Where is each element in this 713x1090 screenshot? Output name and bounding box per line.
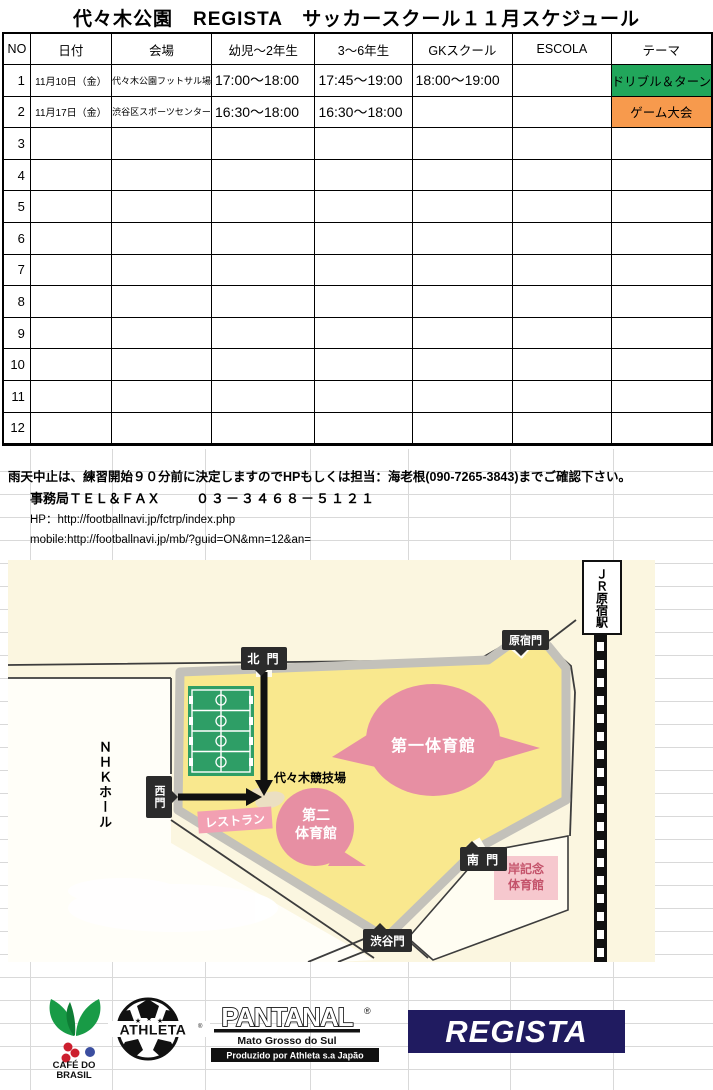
cell-venue [111, 222, 211, 254]
cell-escola [513, 96, 611, 128]
harajuku-gate-label: 原宿門 [502, 630, 549, 650]
cell-gk [412, 191, 513, 223]
yoyogi-stadium-label: 代々木競技場 [274, 769, 346, 786]
table-row: 7 [3, 254, 712, 286]
cell-date [30, 159, 111, 191]
underline [214, 1029, 360, 1033]
cell-gk [412, 317, 513, 349]
cell-theme [611, 159, 712, 191]
cafe-text-line2: BRASIL [56, 1070, 92, 1080]
office-tel-label: 事務局ＴＥＬ＆ＦＡＸ [30, 488, 160, 507]
cell-infant [211, 191, 314, 223]
cell-infant: 16:30～18:00 [211, 96, 314, 128]
cell-escola [513, 380, 611, 412]
pointer-icon [466, 841, 478, 847]
cell-date [30, 128, 111, 160]
cell-infant [211, 412, 314, 445]
cell-no: 5 [3, 191, 30, 223]
cell-upper [315, 317, 412, 349]
regista-text: REGISTA [445, 1014, 588, 1050]
cell-theme [611, 349, 712, 381]
cell-venue [111, 128, 211, 160]
cell-no: 2 [3, 96, 30, 128]
cell-escola [513, 412, 611, 445]
table-row: 8 [3, 286, 712, 318]
cell-gk [412, 159, 513, 191]
cell-infant [211, 254, 314, 286]
cell-no: 9 [3, 317, 30, 349]
table-row: 11 [3, 380, 712, 412]
col-header-venue: 会場 [111, 33, 211, 65]
table-row: 3 [3, 128, 712, 160]
north-gate-label: 北 門 [241, 647, 287, 670]
cell-date [30, 412, 111, 445]
col-header-upper: 3～6年生 [315, 33, 412, 65]
cell-no: 8 [3, 286, 30, 318]
cell-theme [611, 191, 712, 223]
cell-no: 3 [3, 128, 30, 160]
cell-upper: 16:30～18:00 [315, 96, 412, 128]
pointer-icon [172, 791, 178, 803]
cell-theme [611, 254, 712, 286]
cell-no: 11 [3, 380, 30, 412]
cell-escola [513, 254, 611, 286]
pantanal-logo: PANTANAL ® Mato Grosso do Sul Produzido … [211, 1002, 387, 1069]
cell-theme [611, 222, 712, 254]
table-row: 111月10日（金）代々木公園フットサル場17:00～18:0017:45～19… [3, 65, 712, 97]
cell-theme [611, 380, 712, 412]
cell-infant [211, 317, 314, 349]
cell-upper [315, 159, 412, 191]
cell-escola [513, 191, 611, 223]
cell-theme: ドリブル＆ターン [611, 65, 712, 97]
cell-escola [513, 222, 611, 254]
cell-theme [611, 128, 712, 160]
page: 代々木公園 REGISTA サッカースクール１１月スケジュール NO 日付 会場… [0, 0, 713, 1090]
cell-no: 10 [3, 349, 30, 381]
page-title: 代々木公園 REGISTA サッカースクール１１月スケジュール [0, 4, 713, 31]
col-header-escola: ESCOLA [513, 33, 611, 65]
cell-escola [513, 349, 611, 381]
cell-upper [315, 412, 412, 445]
athleta-logo: ★★★ ATHLETA ® [108, 997, 210, 1066]
cell-upper [315, 286, 412, 318]
cell-no: 4 [3, 159, 30, 191]
cell-gk [412, 96, 513, 128]
table-row: 6 [3, 222, 712, 254]
cell-theme [611, 412, 712, 445]
cell-upper: 17:45～19:00 [315, 65, 412, 97]
schedule-table: NO 日付 会場 幼児～2年生 3～6年生 GKスクール ESCOLA テーマ … [2, 32, 713, 446]
pointer-icon [255, 670, 267, 676]
cell-infant [211, 286, 314, 318]
cell-gk [412, 222, 513, 254]
cell-venue [111, 254, 211, 286]
cell-venue [111, 191, 211, 223]
pointer-icon [515, 650, 527, 656]
cell-upper [315, 191, 412, 223]
registered-mark: ® [364, 1006, 371, 1016]
pantanal-text: PANTANAL [221, 1002, 353, 1032]
cell-venue [111, 286, 211, 318]
cell-venue: 渋谷区スポーツセンター [111, 96, 211, 128]
cell-venue [111, 349, 211, 381]
cell-date [30, 380, 111, 412]
cafe-do-brasil-logo: CAFÉ DO BRASIL [44, 996, 106, 1085]
cell-no: 1 [3, 65, 30, 97]
cell-gk [412, 412, 513, 445]
col-header-infant: 幼児～2年生 [211, 33, 314, 65]
cell-date [30, 286, 111, 318]
emblem-icon [85, 1047, 95, 1057]
cell-infant: 17:00～18:00 [211, 65, 314, 97]
cell-escola [513, 128, 611, 160]
cell-escola [513, 159, 611, 191]
pantanal-subtitle: Mato Grosso do Sul [237, 1035, 336, 1047]
cell-escola [513, 286, 611, 318]
cell-date [30, 254, 111, 286]
railway-line [594, 633, 607, 962]
cell-gk [412, 380, 513, 412]
cell-theme [611, 317, 712, 349]
cell-venue [111, 159, 211, 191]
table-row: 12 [3, 412, 712, 445]
cell-venue [111, 412, 211, 445]
office-tel-number: ０３－３４６８－５１２１ [196, 488, 376, 507]
cell-no: 12 [3, 412, 30, 445]
athleta-text: ATHLETA [120, 1022, 187, 1038]
table-header-row: NO 日付 会場 幼児～2年生 3～6年生 GKスクール ESCOLA テーマ [3, 33, 712, 65]
cell-gk [412, 349, 513, 381]
west-gate-label: 西門 [146, 776, 172, 818]
rain-cancellation-notice: 雨天中止は、練習開始９０分前に決定しますのでHPもしくは担当：海老根(090-7… [8, 466, 631, 485]
cell-infant [211, 349, 314, 381]
gym2-label: 第二 体育館 [277, 807, 355, 842]
cell-date: 11月17日（金） [30, 96, 111, 128]
cell-gk [412, 286, 513, 318]
cell-upper [315, 254, 412, 286]
col-header-theme: テーマ [611, 33, 712, 65]
cell-venue [111, 380, 211, 412]
cell-date [30, 349, 111, 381]
cell-no: 7 [3, 254, 30, 286]
cell-infant [211, 128, 314, 160]
cell-infant [211, 380, 314, 412]
col-header-gk: GKスクール [412, 33, 513, 65]
cell-escola [513, 317, 611, 349]
futsal-courts [188, 686, 254, 776]
pantanal-bar-text: Produzido por Athleta s.a Japão [226, 1051, 364, 1061]
registered-mark: ® [198, 1023, 203, 1030]
cell-theme [611, 286, 712, 318]
table-row: 9 [3, 317, 712, 349]
jr-harajuku-station-label: ＪＲ原宿駅 [582, 560, 622, 635]
south-gate-label: 南 門 [460, 847, 507, 871]
table-row: 4 [3, 159, 712, 191]
cell-upper [315, 380, 412, 412]
nhk-hall-label: ＮＨＫホール [71, 702, 138, 867]
access-map: ＮＨＫホール ＪＲ原宿駅 第一体育館 第二 体育館 代々木競技場 レストラン 岸… [8, 560, 655, 962]
table-row: 5 [3, 191, 712, 223]
pointer-icon [374, 923, 386, 929]
table-row: 211月17日（金）渋谷区スポーツセンター16:30～18:0016:30～18… [3, 96, 712, 128]
cell-upper [315, 128, 412, 160]
cell-escola [513, 65, 611, 97]
cell-date [30, 317, 111, 349]
cell-upper [315, 222, 412, 254]
coffee-leaves-icon [50, 999, 101, 1036]
mobile-url: mobile:http://footballnavi.jp/mb/?guid=O… [30, 534, 311, 546]
cell-gk [412, 254, 513, 286]
cell-venue [111, 317, 211, 349]
col-header-date: 日付 [30, 33, 111, 65]
cell-venue: 代々木公園フットサル場 [111, 65, 211, 97]
cell-infant [211, 222, 314, 254]
col-header-no: NO [3, 33, 30, 65]
cell-infant [211, 159, 314, 191]
cell-date [30, 191, 111, 223]
cell-date: 11月10日（金） [30, 65, 111, 97]
regista-logo: REGISTA [408, 1010, 625, 1053]
cell-upper [315, 349, 412, 381]
hp-url: HP：http://footballnavi.jp/fctrp/index.ph… [30, 511, 235, 527]
cell-gk [412, 128, 513, 160]
shibuya-gate-label: 渋谷門 [363, 929, 412, 952]
cell-no: 6 [3, 222, 30, 254]
table-row: 10 [3, 349, 712, 381]
gym1-label: 第一体育館 [371, 732, 496, 756]
cell-date [30, 222, 111, 254]
cell-theme: ゲーム大会 [611, 96, 712, 128]
cell-gk: 18:00～19:00 [412, 65, 513, 97]
